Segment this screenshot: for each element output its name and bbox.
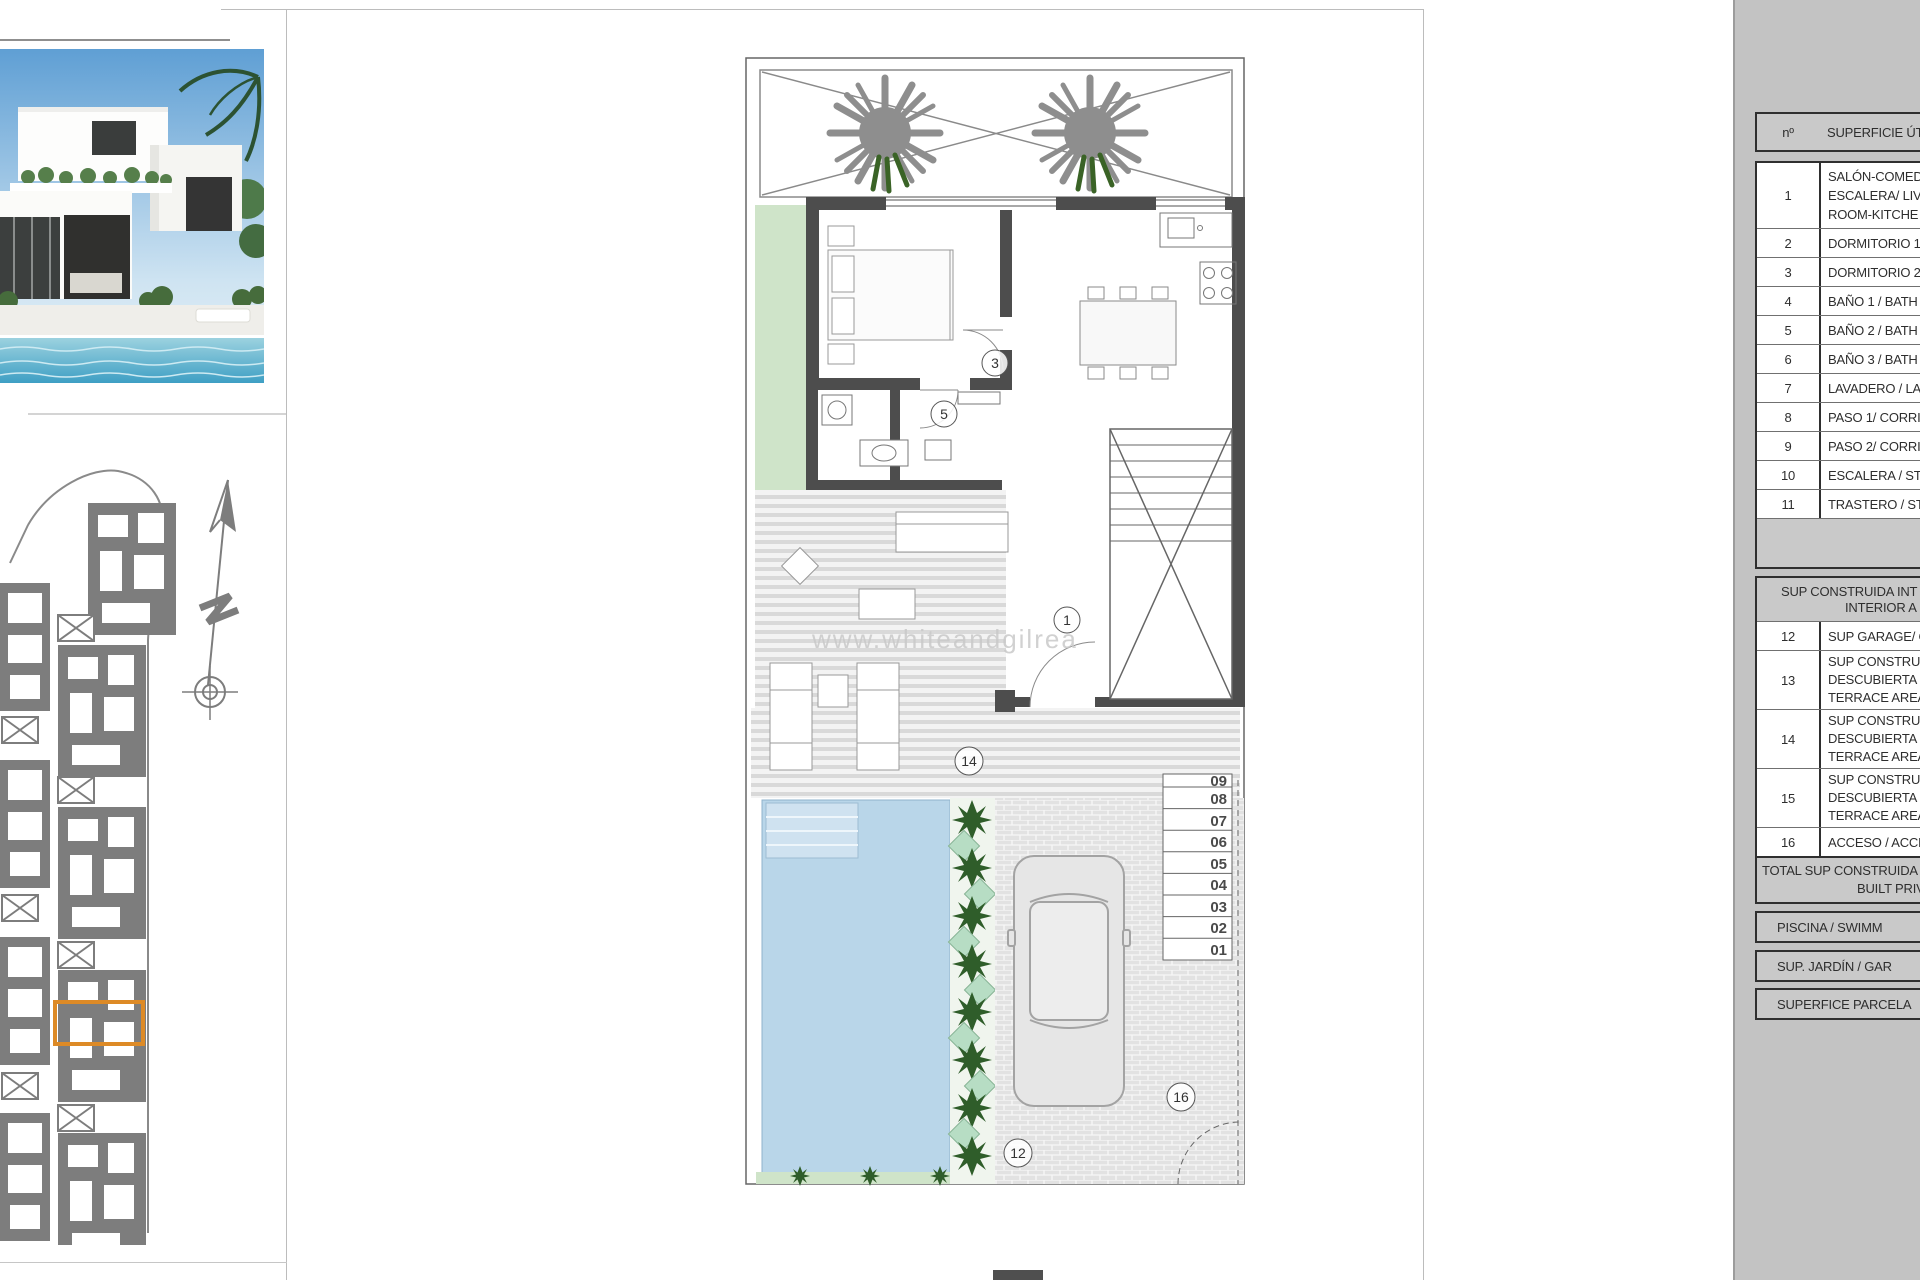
table-row: 11TRASTERO / STO: [1757, 490, 1920, 518]
table-row: 16ACCESO / ACCE: [1757, 827, 1920, 856]
row-number: 6: [1757, 345, 1821, 373]
svg-text:07: 07: [1210, 813, 1227, 830]
table-row: 1SALÓN-COMEDESCALERA/ LIVIROOM-KITCHE: [1757, 163, 1920, 229]
row-label: ESCALERA / STA: [1821, 461, 1920, 489]
floor-plan: 09 08 07 06 05 04 03 02 01: [740, 50, 1252, 1190]
row-number: 11: [1757, 490, 1821, 518]
header-label-col: SUPERFICIE ÚTI: [1819, 125, 1920, 140]
row-number: 4: [1757, 287, 1821, 315]
rows-built-container: 12SUP GARAGE/ C13SUP CONSTRUIDESCUBIERTA…: [1757, 621, 1920, 856]
table-row: 7LAVADERO / LA: [1757, 374, 1920, 403]
svg-text:08: 08: [1210, 791, 1227, 808]
svg-text:04: 04: [1210, 877, 1227, 894]
hedge-strip: [948, 798, 995, 1184]
row-number: 3: [1757, 258, 1821, 286]
table-row: 15SUP CONSTRUIDESCUBIERTA 3TERRACE AREA: [1757, 768, 1920, 827]
row-number: 12: [1757, 622, 1821, 650]
row-number: 7: [1757, 374, 1821, 402]
summary-band: SUPERFICE PARCELA: [1755, 988, 1920, 1020]
row-number: 9: [1757, 432, 1821, 460]
table-filler-band: [1757, 518, 1920, 567]
right-panel-divider: [1423, 9, 1424, 1280]
table-row: 13SUP CONSTRUIDESCUBIERTA 1TERRACE AREA: [1757, 650, 1920, 709]
row-label: DORMITORIO 2: [1821, 258, 1920, 286]
table-row: 3DORMITORIO 2: [1757, 258, 1920, 287]
table-row: 9PASO 2/ CORRI: [1757, 432, 1920, 461]
table-row: 2DORMITORIO 1: [1757, 229, 1920, 258]
row-label: SUP CONSTRUIDESCUBIERTA 1TERRACE AREA: [1821, 651, 1920, 709]
callout-access: 16: [1173, 1089, 1189, 1105]
row-label: SUP GARAGE/ C: [1821, 622, 1920, 650]
row-number: 10: [1757, 461, 1821, 489]
titleblock-mark: [993, 1270, 1043, 1280]
left-panel-divider: [286, 9, 287, 1280]
row-number: 15: [1757, 769, 1821, 827]
row-label: PASO 1/ CORRI: [1821, 403, 1920, 431]
plan-sheet: { "sheet": { "watermark": "www.whiteandg…: [0, 0, 1920, 1280]
row-number: 13: [1757, 651, 1821, 709]
dining-table: [1080, 287, 1176, 379]
table-row: 14SUP CONSTRUIDESCUBIERTA 2TERRACE AREA: [1757, 709, 1920, 768]
useful-area-rows: 1SALÓN-COMEDESCALERA/ LIVIROOM-KITCHE2DO…: [1755, 161, 1920, 569]
row-number: 16: [1757, 828, 1821, 856]
row-label: BAÑO 3 / BATH: [1821, 345, 1918, 373]
table-row: 6BAÑO 3 / BATH: [1757, 345, 1920, 374]
area-table-header: nº SUPERFICIE ÚTI: [1755, 112, 1920, 152]
summary-band: PISCINA / SWIMM: [1755, 911, 1920, 943]
pool: [762, 800, 950, 1178]
row-number: 2: [1757, 229, 1821, 257]
header-number-col: nº: [1757, 125, 1819, 140]
row-label: PASO 2/ CORRI: [1821, 432, 1920, 460]
area-table: nº SUPERFICIE ÚTI 1SALÓN-COMEDESCALERA/ …: [1755, 112, 1920, 1020]
row-label: TRASTERO / STO: [1821, 490, 1920, 518]
bands-container: PISCINA / SWIMMSUP. JARDÍN / GARSUPERFIC…: [1755, 911, 1920, 1020]
row-number: 14: [1757, 710, 1821, 768]
watermark: www.whiteandgilrea: [811, 624, 1078, 654]
callout-bath-door: 5: [940, 406, 948, 422]
row-number: 5: [1757, 316, 1821, 344]
svg-text:01: 01: [1210, 942, 1227, 959]
svg-text:09: 09: [1210, 773, 1227, 790]
callout-living: 1: [1063, 612, 1071, 628]
svg-text:05: 05: [1210, 856, 1227, 873]
north-arrow-icon: [170, 470, 260, 730]
photo-separator-rule: [28, 413, 286, 415]
row-label: DORMITORIO 1: [1821, 229, 1920, 257]
row-label: LAVADERO / LA: [1821, 374, 1920, 402]
villa-photo: [0, 49, 264, 383]
row-label: ACCESO / ACCE: [1821, 828, 1920, 856]
table-row: 10ESCALERA / STA: [1757, 461, 1920, 490]
row-number: 1: [1757, 163, 1821, 228]
summary-band: SUP. JARDÍN / GAR: [1755, 950, 1920, 982]
left-panel-bottom-rule: [0, 1262, 287, 1263]
table-row: 8PASO 1/ CORRI: [1757, 403, 1920, 432]
table-row: 12SUP GARAGE/ C: [1757, 621, 1920, 650]
rows-util-container: 1SALÓN-COMEDESCALERA/ LIVIROOM-KITCHE2DO…: [1757, 163, 1920, 518]
callout-bedroom-door: 3: [991, 355, 999, 371]
built-area-section: SUP CONSTRUIDA INT INTERIOR A 12SUP GARA…: [1755, 576, 1920, 904]
callout-terrace: 14: [961, 753, 977, 769]
row-label: SUP CONSTRUIDESCUBIERTA 2TERRACE AREA: [1821, 710, 1920, 768]
left-panel-top-rule: [0, 39, 230, 41]
stairs: [1110, 429, 1232, 699]
row-label: SUP CONSTRUIDESCUBIERTA 3TERRACE AREA: [1821, 769, 1920, 827]
row-label: BAÑO 1 / BATH: [1821, 287, 1918, 315]
row-number: 8: [1757, 403, 1821, 431]
total-built-row: TOTAL SUP CONSTRUIDA BUILT PRIVAT: [1757, 856, 1920, 902]
row-label: BAÑO 2 / BATH: [1821, 316, 1918, 344]
built-area-section-header: SUP CONSTRUIDA INT INTERIOR A: [1757, 578, 1920, 621]
garden-strip: [755, 205, 807, 505]
svg-text:03: 03: [1210, 899, 1227, 916]
svg-text:06: 06: [1210, 834, 1227, 851]
table-row: 5BAÑO 2 / BATH: [1757, 316, 1920, 345]
callout-garage: 12: [1010, 1145, 1026, 1161]
row-label: SALÓN-COMEDESCALERA/ LIVIROOM-KITCHE: [1821, 163, 1920, 228]
table-row: 4BAÑO 1 / BATH: [1757, 287, 1920, 316]
sheet-top-border: [221, 9, 1423, 10]
driveway-steps: 09 08 07 06 05 04 03 02 01: [1163, 773, 1232, 960]
car-icon: [1008, 856, 1130, 1106]
svg-text:02: 02: [1210, 920, 1227, 937]
